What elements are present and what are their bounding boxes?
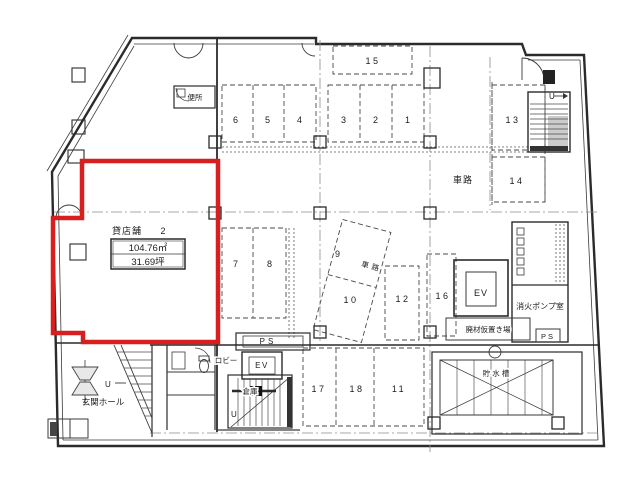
stairs-bottom-center (228, 375, 292, 428)
elevator-right-label: EV (474, 288, 488, 298)
unit-name-label: 貸店舗 (112, 225, 142, 236)
parking-12: 12 (395, 294, 410, 304)
stairs-up-lower-label: U (231, 410, 237, 419)
entrance-hall-label: 玄関ホール (82, 397, 125, 407)
parking-13: 13 (505, 115, 520, 125)
lobby-label: ロビー (215, 356, 238, 365)
interior-walls (56, 38, 598, 437)
parking-15: 15 (365, 56, 380, 66)
parking-9: 9 (335, 249, 341, 259)
parking-5: 5 (265, 115, 271, 125)
parking-6: 6 (233, 115, 239, 125)
floor-plan-drawing: 貸店舗 2 104.76㎡ 31.69坪 便所 車路 車路 EV 消火ポンプ室 … (0, 0, 640, 480)
storage-closets-bottom-left (48, 419, 88, 438)
parking-4: 4 (297, 115, 303, 125)
unit-area-m2: 104.76㎡ (129, 243, 168, 254)
double-door-top (174, 43, 203, 58)
machine-room-upper-right (517, 224, 564, 282)
stairs-up-entrance-label: U (105, 380, 111, 389)
parking-10: 10 (343, 295, 358, 305)
pipe-shaft-lower-label: PS (260, 337, 277, 346)
parking-number-labels: 1 2 3 4 5 6 7 8 9 10 11 12 13 14 15 16 1… (233, 56, 525, 394)
unit-area-tsubo: 31.69坪 (131, 256, 165, 268)
driveway-center-label: 車路 (360, 259, 383, 274)
water-tank-label: 貯水槽 (483, 368, 512, 378)
door-near-stall-15 (302, 43, 315, 56)
parking-14: 14 (509, 176, 524, 186)
parking-8: 8 (267, 259, 273, 269)
elevator-lower-label: EV (255, 361, 269, 370)
storage-label: 倉庫 (243, 386, 258, 396)
water-tank-pit (432, 346, 582, 434)
parking-1: 1 (405, 115, 411, 125)
parking-3: 3 (341, 115, 347, 125)
parking-7: 7 (233, 259, 239, 269)
stairs-up-right-label: U (549, 92, 555, 101)
floor-plan-page: 貸店舗 2 104.76㎡ 31.69坪 便所 車路 車路 EV 消火ポンプ室 … (0, 0, 640, 480)
unit-number-label: 2 (160, 226, 165, 236)
driveway-right-label: 車路 (453, 174, 473, 185)
parking-18: 18 (349, 384, 364, 394)
pipe-shaft-right-label: PS (541, 332, 555, 341)
waste-storage-label: 廃材仮置き場 (466, 324, 511, 334)
parking-16: 16 (435, 291, 450, 301)
fire-pump-room-label: 消火ポンプ室 (516, 301, 564, 311)
toilet-lower-fixtures (172, 348, 210, 373)
parking-2: 2 (373, 115, 379, 125)
unit-area-table: 貸店舗 2 104.76㎡ 31.69坪 (111, 225, 185, 269)
parking-11: 11 (392, 384, 406, 394)
parking-17: 17 (311, 384, 326, 394)
diagonal-stalls-9-10 (313, 219, 391, 342)
toilet-upper-label: 便所 (188, 92, 203, 102)
stairs-entrance (114, 345, 152, 433)
